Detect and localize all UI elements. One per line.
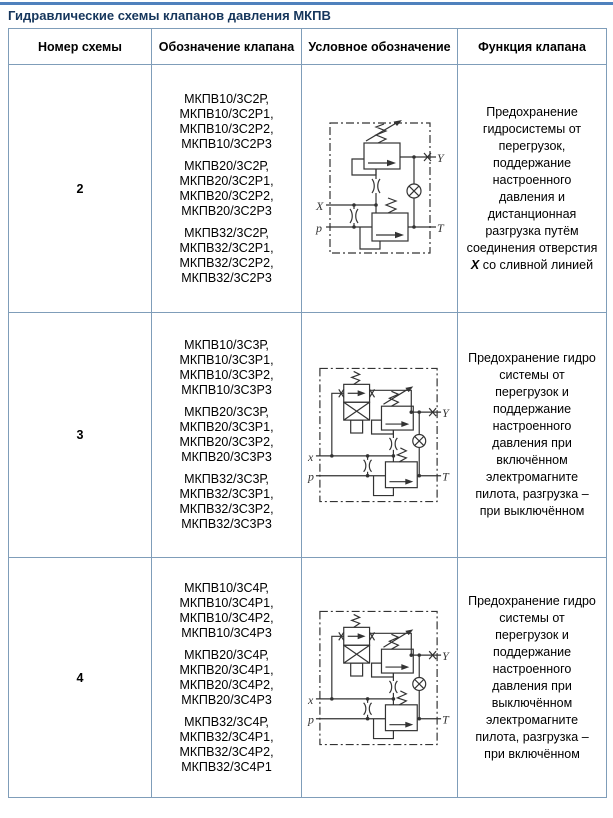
port-label-t: T xyxy=(437,221,445,235)
designation-line: МКПВ32/3С4Р1, xyxy=(156,730,297,745)
port-label-y: Y xyxy=(442,406,450,420)
designation-group: МКПВ20/3С3Р,МКПВ20/3С3Р1,МКПВ20/3С3Р2,МК… xyxy=(156,405,297,465)
top-rule-divider xyxy=(0,2,613,5)
throttle-icon xyxy=(364,702,372,714)
designation-line: МКПВ20/3С2Р, xyxy=(156,159,297,174)
port-label-t: T xyxy=(442,712,450,726)
designation-line: МКПВ10/3С4Р2, xyxy=(156,611,297,626)
designation-line: МКПВ32/3С3Р1, xyxy=(156,487,297,502)
port-label-t: T xyxy=(442,470,450,484)
table-header: Номер схемы Обозначение клапана Условное… xyxy=(9,29,607,65)
spring-icon xyxy=(352,371,360,384)
designation-line: МКПВ20/3С3Р1, xyxy=(156,420,297,435)
spring-icon xyxy=(397,448,406,462)
designation-line: МКПВ20/3С2Р2, xyxy=(156,189,297,204)
designation-line: МКПВ32/3С2Р3 xyxy=(156,271,297,286)
valve-schemes-table: Номер схемы Обозначение клапана Условное… xyxy=(8,28,607,798)
adjustable-spring-icon xyxy=(389,391,398,406)
page: Гидравлические схемы клапанов давления М… xyxy=(0,0,613,818)
designation-group: МКПВ10/3С3Р,МКПВ10/3С3Р1,МКПВ10/3С3Р2,МК… xyxy=(156,338,297,398)
designation-line: МКПВ32/3С4Р2, xyxy=(156,745,297,760)
port-label-p: p xyxy=(315,221,322,235)
spring-icon xyxy=(352,614,360,627)
adjustable-spring-icon xyxy=(389,634,398,649)
designation-line: МКПВ20/3С4Р1, xyxy=(156,663,297,678)
function-text-segment: со сливной линией xyxy=(479,258,593,272)
throttle-icon xyxy=(350,209,358,223)
hydraulic-schematic-solenoid-pilot: x p Y T xyxy=(306,360,453,510)
throttle-icon xyxy=(389,438,397,450)
function-text: Предохранение гидро системы от перегрузо… xyxy=(462,350,602,520)
port-label-y: Y xyxy=(442,649,450,663)
designation-line: МКПВ20/3С3Р, xyxy=(156,405,297,420)
port-label-x: x xyxy=(307,692,314,706)
designation-group: МКПВ32/3С2Р,МКПВ32/3С2Р1,МКПВ32/3С2Р2,МК… xyxy=(156,226,297,286)
designation-group: МКПВ20/3С2Р,МКПВ20/3С2Р1,МКПВ20/3С2Р2,МК… xyxy=(156,159,297,219)
designation-line: МКПВ32/3С2Р2, xyxy=(156,256,297,271)
solenoid-actuator xyxy=(351,663,363,676)
hydraulic-schematic-scheme2: X p Y T xyxy=(314,113,446,265)
designation-line: МКПВ10/3С3Р, xyxy=(156,338,297,353)
designation-line: МКПВ32/3С3Р, xyxy=(156,472,297,487)
designation-line: МКПВ32/3С3Р2, xyxy=(156,502,297,517)
valve-function-cell: Предохранение гидро системы от перегрузо… xyxy=(458,558,607,798)
designation-group: МКПВ32/3С4Р,МКПВ32/3С4Р1,МКПВ32/3С4Р2,МК… xyxy=(156,715,297,775)
diagram-wrap: x p Y T xyxy=(306,603,453,753)
designation-line: МКПВ20/3С4Р, xyxy=(156,648,297,663)
function-text-segment: Предохранение гидросистемы от перегрузок… xyxy=(467,105,598,255)
designation-line: МКПВ10/3С4Р1, xyxy=(156,596,297,611)
main-valve xyxy=(385,704,417,730)
designation-line: МКПВ32/3С4Р, xyxy=(156,715,297,730)
table-header-row: Номер схемы Обозначение клапана Условное… xyxy=(9,29,607,65)
pilot-valve xyxy=(364,143,400,169)
designation-line: МКПВ10/3С2Р2, xyxy=(156,122,297,137)
designation-group: МКПВ32/3С3Р,МКПВ32/3С3Р1,МКПВ32/3С3Р2,МК… xyxy=(156,472,297,532)
pilot-valve xyxy=(381,406,413,430)
table-body: 2МКПВ10/3С2Р,МКПВ10/3С2Р1,МКПВ10/3С2Р2,М… xyxy=(9,65,607,798)
function-text-emphasis: X xyxy=(471,258,479,272)
designation-line: МКПВ20/3С2Р3 xyxy=(156,204,297,219)
table-row: 3МКПВ10/3С3Р,МКПВ10/3С3Р1,МКПВ10/3С3Р2,М… xyxy=(9,313,607,558)
function-text: Предохранение гидросистемы от перегрузок… xyxy=(462,104,602,274)
symbol-cell: x p Y T xyxy=(302,313,458,558)
symbol-cell: x p Y T xyxy=(302,558,458,798)
designation-line: МКПВ10/3С2Р3 xyxy=(156,137,297,152)
designation-line: МКПВ20/3С4Р3 xyxy=(156,693,297,708)
designation-line: МКПВ10/3С3Р3 xyxy=(156,383,297,398)
scheme-number: 3 xyxy=(9,313,152,558)
designation-group: МКПВ10/3С4Р,МКПВ10/3С4Р1,МКПВ10/3С4Р2,МК… xyxy=(156,581,297,641)
designation-line: МКПВ10/3С2Р, xyxy=(156,92,297,107)
valve-designations-cell: МКПВ10/3С2Р,МКПВ10/3С2Р1,МКПВ10/3С2Р2,МК… xyxy=(152,65,302,313)
function-text-segment: Предохранение гидро системы от перегрузо… xyxy=(468,594,596,761)
header-symbol: Условное обозначение xyxy=(302,29,458,65)
designation-line: МКПВ20/3С2Р1, xyxy=(156,174,297,189)
main-valve xyxy=(372,213,408,241)
header-valve-designation: Обозначение клапана xyxy=(152,29,302,65)
port-label-x: x xyxy=(307,450,314,464)
function-text-segment: Предохранение гидро системы от перегрузо… xyxy=(468,351,596,518)
designation-line: МКПВ20/3С4Р2, xyxy=(156,678,297,693)
designation-group: МКПВ10/3С2Р,МКПВ10/3С2Р1,МКПВ10/3С2Р2,МК… xyxy=(156,92,297,152)
port-label-p: p xyxy=(307,712,314,726)
valve-designations-cell: МКПВ10/3С4Р,МКПВ10/3С4Р1,МКПВ10/3С4Р2,МК… xyxy=(152,558,302,798)
designation-line: МКПВ20/3С3Р3 xyxy=(156,450,297,465)
throttle-icon xyxy=(364,460,372,472)
hydraulic-schematic-solenoid-pilot: x p Y T xyxy=(306,603,453,753)
scheme-number: 4 xyxy=(9,558,152,798)
designation-line: МКПВ10/3С3Р1, xyxy=(156,353,297,368)
symbol-cell: X p Y T xyxy=(302,65,458,313)
table-row: 2МКПВ10/3С2Р,МКПВ10/3С2Р1,МКПВ10/3С2Р2,М… xyxy=(9,65,607,313)
designation-line: МКПВ10/3С4Р, xyxy=(156,581,297,596)
pilot-valve xyxy=(381,649,413,673)
main-valve xyxy=(385,462,417,488)
designation-line: МКПВ10/3С4Р3 xyxy=(156,626,297,641)
scheme-number: 2 xyxy=(9,65,152,313)
designation-line: МКПВ32/3С4Р1 xyxy=(156,760,297,775)
port-label-x: X xyxy=(315,199,324,213)
solenoid-actuator xyxy=(351,420,363,433)
throttle-icon xyxy=(372,179,380,193)
designation-line: МКПВ20/3С3Р2, xyxy=(156,435,297,450)
page-title: Гидравлические схемы клапанов давления М… xyxy=(8,8,613,23)
function-text: Предохранение гидро системы от перегрузо… xyxy=(462,593,602,763)
port-label-p: p xyxy=(307,470,314,484)
diagram-wrap: x p Y T xyxy=(306,360,453,510)
header-scheme-number: Номер схемы xyxy=(9,29,152,65)
designation-line: МКПВ32/3С3Р3 xyxy=(156,517,297,532)
valve-function-cell: Предохранение гидро системы от перегрузо… xyxy=(458,313,607,558)
designation-line: МКПВ32/3С2Р, xyxy=(156,226,297,241)
valve-designations-cell: МКПВ10/3С3Р,МКПВ10/3С3Р1,МКПВ10/3С3Р2,МК… xyxy=(152,313,302,558)
throttle-icon xyxy=(389,680,397,692)
designation-line: МКПВ10/3С3Р2, xyxy=(156,368,297,383)
designation-line: МКПВ10/3С2Р1, xyxy=(156,107,297,122)
designation-group: МКПВ20/3С4Р,МКПВ20/3С4Р1,МКПВ20/3С4Р2,МК… xyxy=(156,648,297,708)
valve-function-cell: Предохранение гидросистемы от перегрузок… xyxy=(458,65,607,313)
designation-line: МКПВ32/3С2Р1, xyxy=(156,241,297,256)
table-row: 4МКПВ10/3С4Р,МКПВ10/3С4Р1,МКПВ10/3С4Р2,М… xyxy=(9,558,607,798)
port-label-y: Y xyxy=(437,151,445,165)
diagram-wrap: X p Y T xyxy=(306,113,453,265)
spring-icon xyxy=(397,690,406,704)
spring-icon xyxy=(386,198,396,213)
header-valve-function: Функция клапана xyxy=(458,29,607,65)
